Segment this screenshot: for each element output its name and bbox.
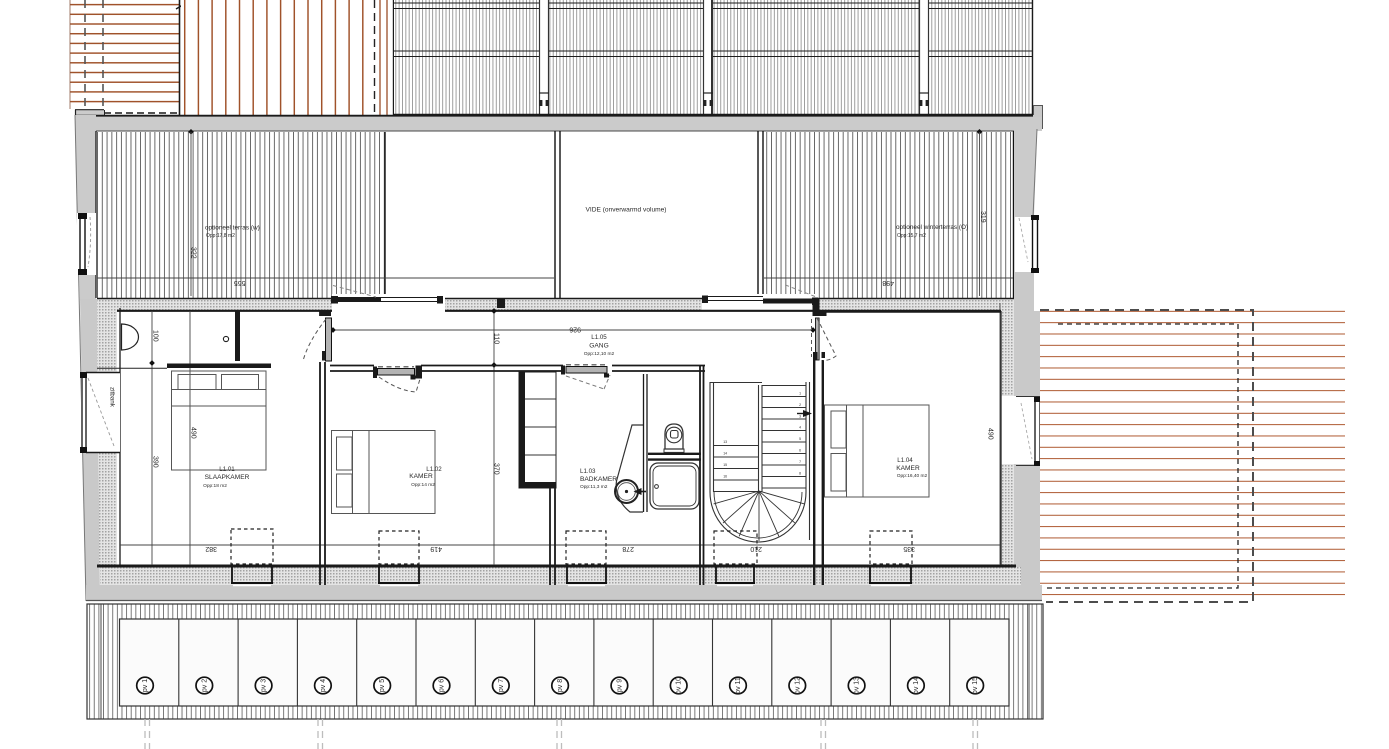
svg-text:pv 5: pv 5: [379, 679, 386, 692]
svg-text:555: 555: [234, 279, 246, 286]
svg-text:pv 9: pv 9: [616, 679, 623, 692]
svg-text:L1.04: L1.04: [897, 457, 913, 464]
svg-text:382: 382: [205, 545, 217, 552]
svg-text:319: 319: [979, 211, 986, 223]
svg-text:pv 11: pv 11: [735, 677, 742, 694]
svg-text:L1.05: L1.05: [591, 334, 607, 341]
svg-text:15: 15: [723, 463, 727, 467]
svg-text:Opp:18 m2: Opp:18 m2: [203, 483, 227, 489]
svg-text:322: 322: [190, 247, 197, 259]
svg-text:13: 13: [723, 440, 727, 444]
svg-text:210: 210: [750, 545, 762, 552]
svg-text:6: 6: [799, 449, 801, 453]
svg-text:pv 4: pv 4: [320, 679, 327, 692]
svg-text:Opp:16,40 m2: Opp:16,40 m2: [897, 473, 928, 479]
svg-text:zitbank: zitbank: [109, 387, 116, 408]
svg-text:7: 7: [799, 460, 801, 464]
svg-text:Opp:17,8 m2: Opp:17,8 m2: [206, 233, 235, 239]
svg-text:Opp:12,10 m2: Opp:12,10 m2: [584, 351, 615, 357]
svg-text:pv 3: pv 3: [261, 679, 268, 692]
svg-text:2: 2: [799, 403, 801, 407]
svg-text:pv 7: pv 7: [498, 679, 505, 692]
svg-text:490: 490: [190, 427, 197, 439]
svg-text:4: 4: [799, 426, 801, 430]
svg-text:100: 100: [152, 330, 159, 342]
svg-text:pv 8: pv 8: [557, 679, 564, 692]
svg-text:926: 926: [569, 326, 581, 333]
svg-text:1: 1: [799, 392, 801, 396]
svg-text:370: 370: [493, 463, 500, 475]
svg-text:490: 490: [987, 428, 994, 440]
svg-text:pv 1: pv 1: [142, 679, 149, 692]
svg-text:GANG: GANG: [589, 343, 608, 350]
svg-text:VIDE (onverwarmd volume): VIDE (onverwarmd volume): [586, 207, 667, 214]
svg-text:optioneel winterterras (O): optioneel winterterras (O): [896, 224, 968, 231]
svg-text:pv 14: pv 14: [913, 677, 920, 694]
svg-text:8: 8: [799, 471, 801, 475]
svg-text:3: 3: [799, 414, 801, 418]
svg-text:419: 419: [430, 545, 442, 552]
svg-text:pv 2: pv 2: [201, 679, 208, 692]
svg-text:278: 278: [622, 545, 634, 552]
svg-text:110: 110: [493, 333, 500, 344]
svg-text:pv 13: pv 13: [854, 677, 861, 694]
svg-text:5: 5: [799, 437, 801, 441]
svg-text:KAMER: KAMER: [896, 465, 920, 472]
svg-text:pv 15: pv 15: [972, 677, 979, 694]
svg-text:SLAAPKAMER: SLAAPKAMER: [205, 474, 250, 481]
svg-text:14: 14: [723, 452, 727, 456]
svg-text:L1.03: L1.03: [580, 468, 596, 475]
svg-text:498: 498: [882, 279, 894, 286]
svg-text:KAMER: KAMER: [409, 473, 433, 480]
svg-text:Opp:15,7 m2: Opp:15,7 m2: [897, 233, 926, 239]
svg-text:Opp:14 m2: Opp:14 m2: [411, 482, 435, 488]
svg-text:Opp:11,3 m2: Opp:11,3 m2: [580, 484, 608, 490]
svg-text:BADKAMER: BADKAMER: [580, 476, 617, 483]
svg-text:pv 10: pv 10: [676, 677, 683, 694]
svg-text:335: 335: [903, 545, 915, 552]
svg-text:pv 6: pv 6: [439, 679, 446, 692]
svg-text:16: 16: [723, 475, 727, 479]
svg-text:390: 390: [152, 456, 159, 468]
svg-text:optioneel terras (w): optioneel terras (w): [205, 225, 260, 232]
svg-text:L1.02: L1.02: [426, 466, 442, 473]
svg-text:pv 12: pv 12: [794, 677, 801, 694]
